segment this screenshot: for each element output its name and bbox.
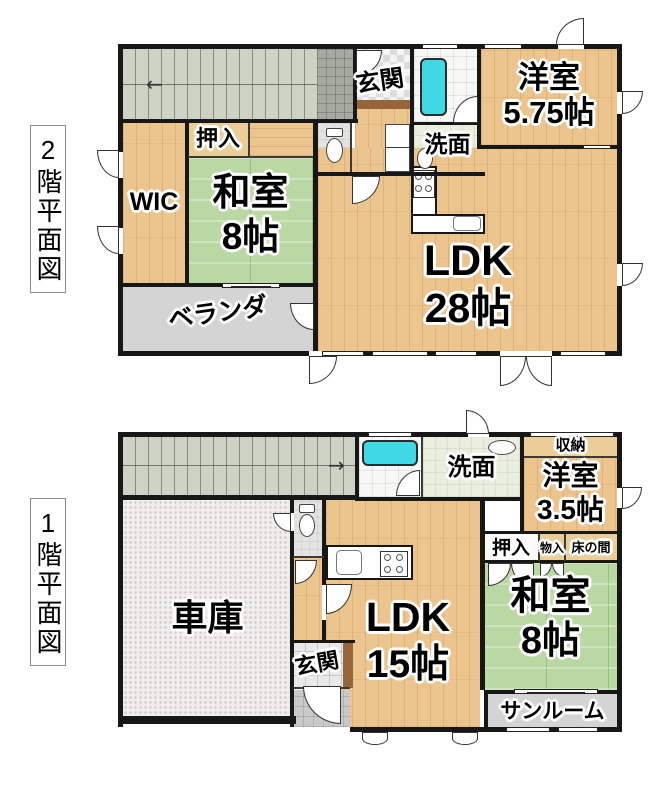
burner-icon — [396, 566, 403, 573]
wall — [290, 640, 355, 643]
wall — [118, 283, 318, 287]
window — [506, 727, 550, 732]
toilet-tank-2f — [326, 128, 343, 137]
wall — [524, 456, 617, 458]
window — [583, 145, 611, 149]
floor1-caption: 1階平面図 — [35, 508, 61, 657]
wall — [118, 716, 296, 724]
hall-strip-2f — [250, 123, 313, 156]
wall — [350, 123, 352, 172]
sliding-window — [222, 283, 280, 288]
label-wic-2f: WIC — [123, 190, 185, 215]
bathtub-2f — [420, 58, 447, 116]
label-oshiire-2f: 押入 — [188, 128, 248, 150]
wall — [118, 432, 123, 727]
label-washitsu-2f: 和室 — [188, 174, 313, 212]
wall — [322, 497, 326, 585]
label-ldk-size-1f: 15帖 — [343, 645, 473, 684]
wall — [188, 156, 313, 158]
label-yoshitsu-1f: 洋室 — [524, 462, 617, 490]
door-arc — [500, 356, 526, 386]
wall — [355, 432, 359, 497]
genkan-step-2f — [355, 100, 410, 109]
door-arc — [526, 356, 552, 386]
door-arc — [452, 732, 478, 745]
washstand-sink-1f — [488, 440, 516, 455]
burner-icon — [425, 185, 432, 192]
toilet-bowl-1f — [299, 514, 315, 537]
wall — [118, 119, 358, 123]
wall — [293, 556, 324, 558]
burner-icon — [396, 554, 403, 561]
label-washitsu-1f: 和室 — [484, 576, 617, 616]
kitchen-sink-2f — [453, 216, 481, 231]
door-arc — [362, 732, 388, 745]
floor2-caption: 2階平面図 — [35, 135, 61, 284]
burner-icon — [384, 554, 391, 561]
window — [484, 44, 522, 49]
door-arc — [556, 18, 584, 45]
label-shuno-1f: 収納 — [524, 438, 617, 453]
label-ldk-1f: LDK — [343, 597, 473, 638]
door-arc — [309, 356, 337, 384]
door-arc — [97, 226, 119, 254]
window — [372, 351, 428, 356]
kitchen-sink-1f — [336, 550, 362, 575]
stair-direction-arrow-2f: ← — [146, 74, 163, 94]
label-oshiire-1f: 押入 — [484, 539, 538, 558]
label-yoshitsu-2f: 洋室 — [481, 62, 617, 93]
burner-icon — [384, 566, 391, 573]
label-ldk-2f: LDK — [368, 240, 568, 283]
label-sunroom-1f: サンルーム — [488, 701, 617, 722]
door-arc — [466, 410, 489, 434]
wall — [480, 531, 622, 534]
label-ldk-size-2f: 28帖 — [368, 288, 568, 329]
window — [422, 44, 458, 49]
window — [560, 351, 606, 356]
wall — [355, 497, 522, 501]
staircase-1f — [122, 437, 355, 496]
label-washitsu-size-2f: 8帖 — [188, 218, 313, 255]
window — [558, 727, 598, 732]
door-arc — [622, 263, 643, 286]
floor1-caption-box: 1階平面図 — [30, 498, 66, 666]
window — [368, 432, 412, 437]
wall — [617, 432, 622, 732]
door-arc — [97, 150, 119, 178]
floor2-caption-box: 2階平面図 — [30, 125, 66, 293]
label-yoshitsu-size-2f: 5.75帖 — [481, 97, 617, 128]
bathtub-1f — [362, 440, 418, 466]
label-senmen-2f: 洗面 — [414, 133, 481, 156]
door-arc — [622, 91, 643, 114]
entrance-tile-dark-2f — [317, 48, 353, 122]
label-tokonoma-1f: 床の間 — [564, 541, 618, 554]
wall — [248, 123, 250, 156]
sliding-window — [514, 689, 598, 694]
closet-folding-doors-2f — [385, 124, 410, 172]
toilet-bowl-2f — [326, 138, 343, 163]
label-washitsu-size-1f: 8帖 — [484, 622, 617, 660]
stair-direction-arrow-1f: → — [328, 455, 345, 475]
label-senmen-1f: 洗面 — [423, 456, 520, 480]
wall — [410, 44, 414, 176]
wall — [313, 172, 485, 176]
toilet-tank-1f — [299, 504, 315, 513]
wall — [118, 44, 622, 49]
label-shako-1f: 車庫 — [140, 600, 275, 636]
label-monoire-1f: 物入 — [538, 542, 566, 554]
burner-icon — [415, 185, 422, 192]
label-yoshitsu-size-1f: 3.5帖 — [524, 496, 617, 524]
window — [435, 351, 477, 356]
floor-plan-canvas: 2階平面図 1階平面図 ← — [0, 0, 672, 800]
staircase-1f-midline — [122, 465, 355, 466]
door-arc — [622, 487, 642, 509]
closet-divider-2f — [385, 147, 410, 148]
